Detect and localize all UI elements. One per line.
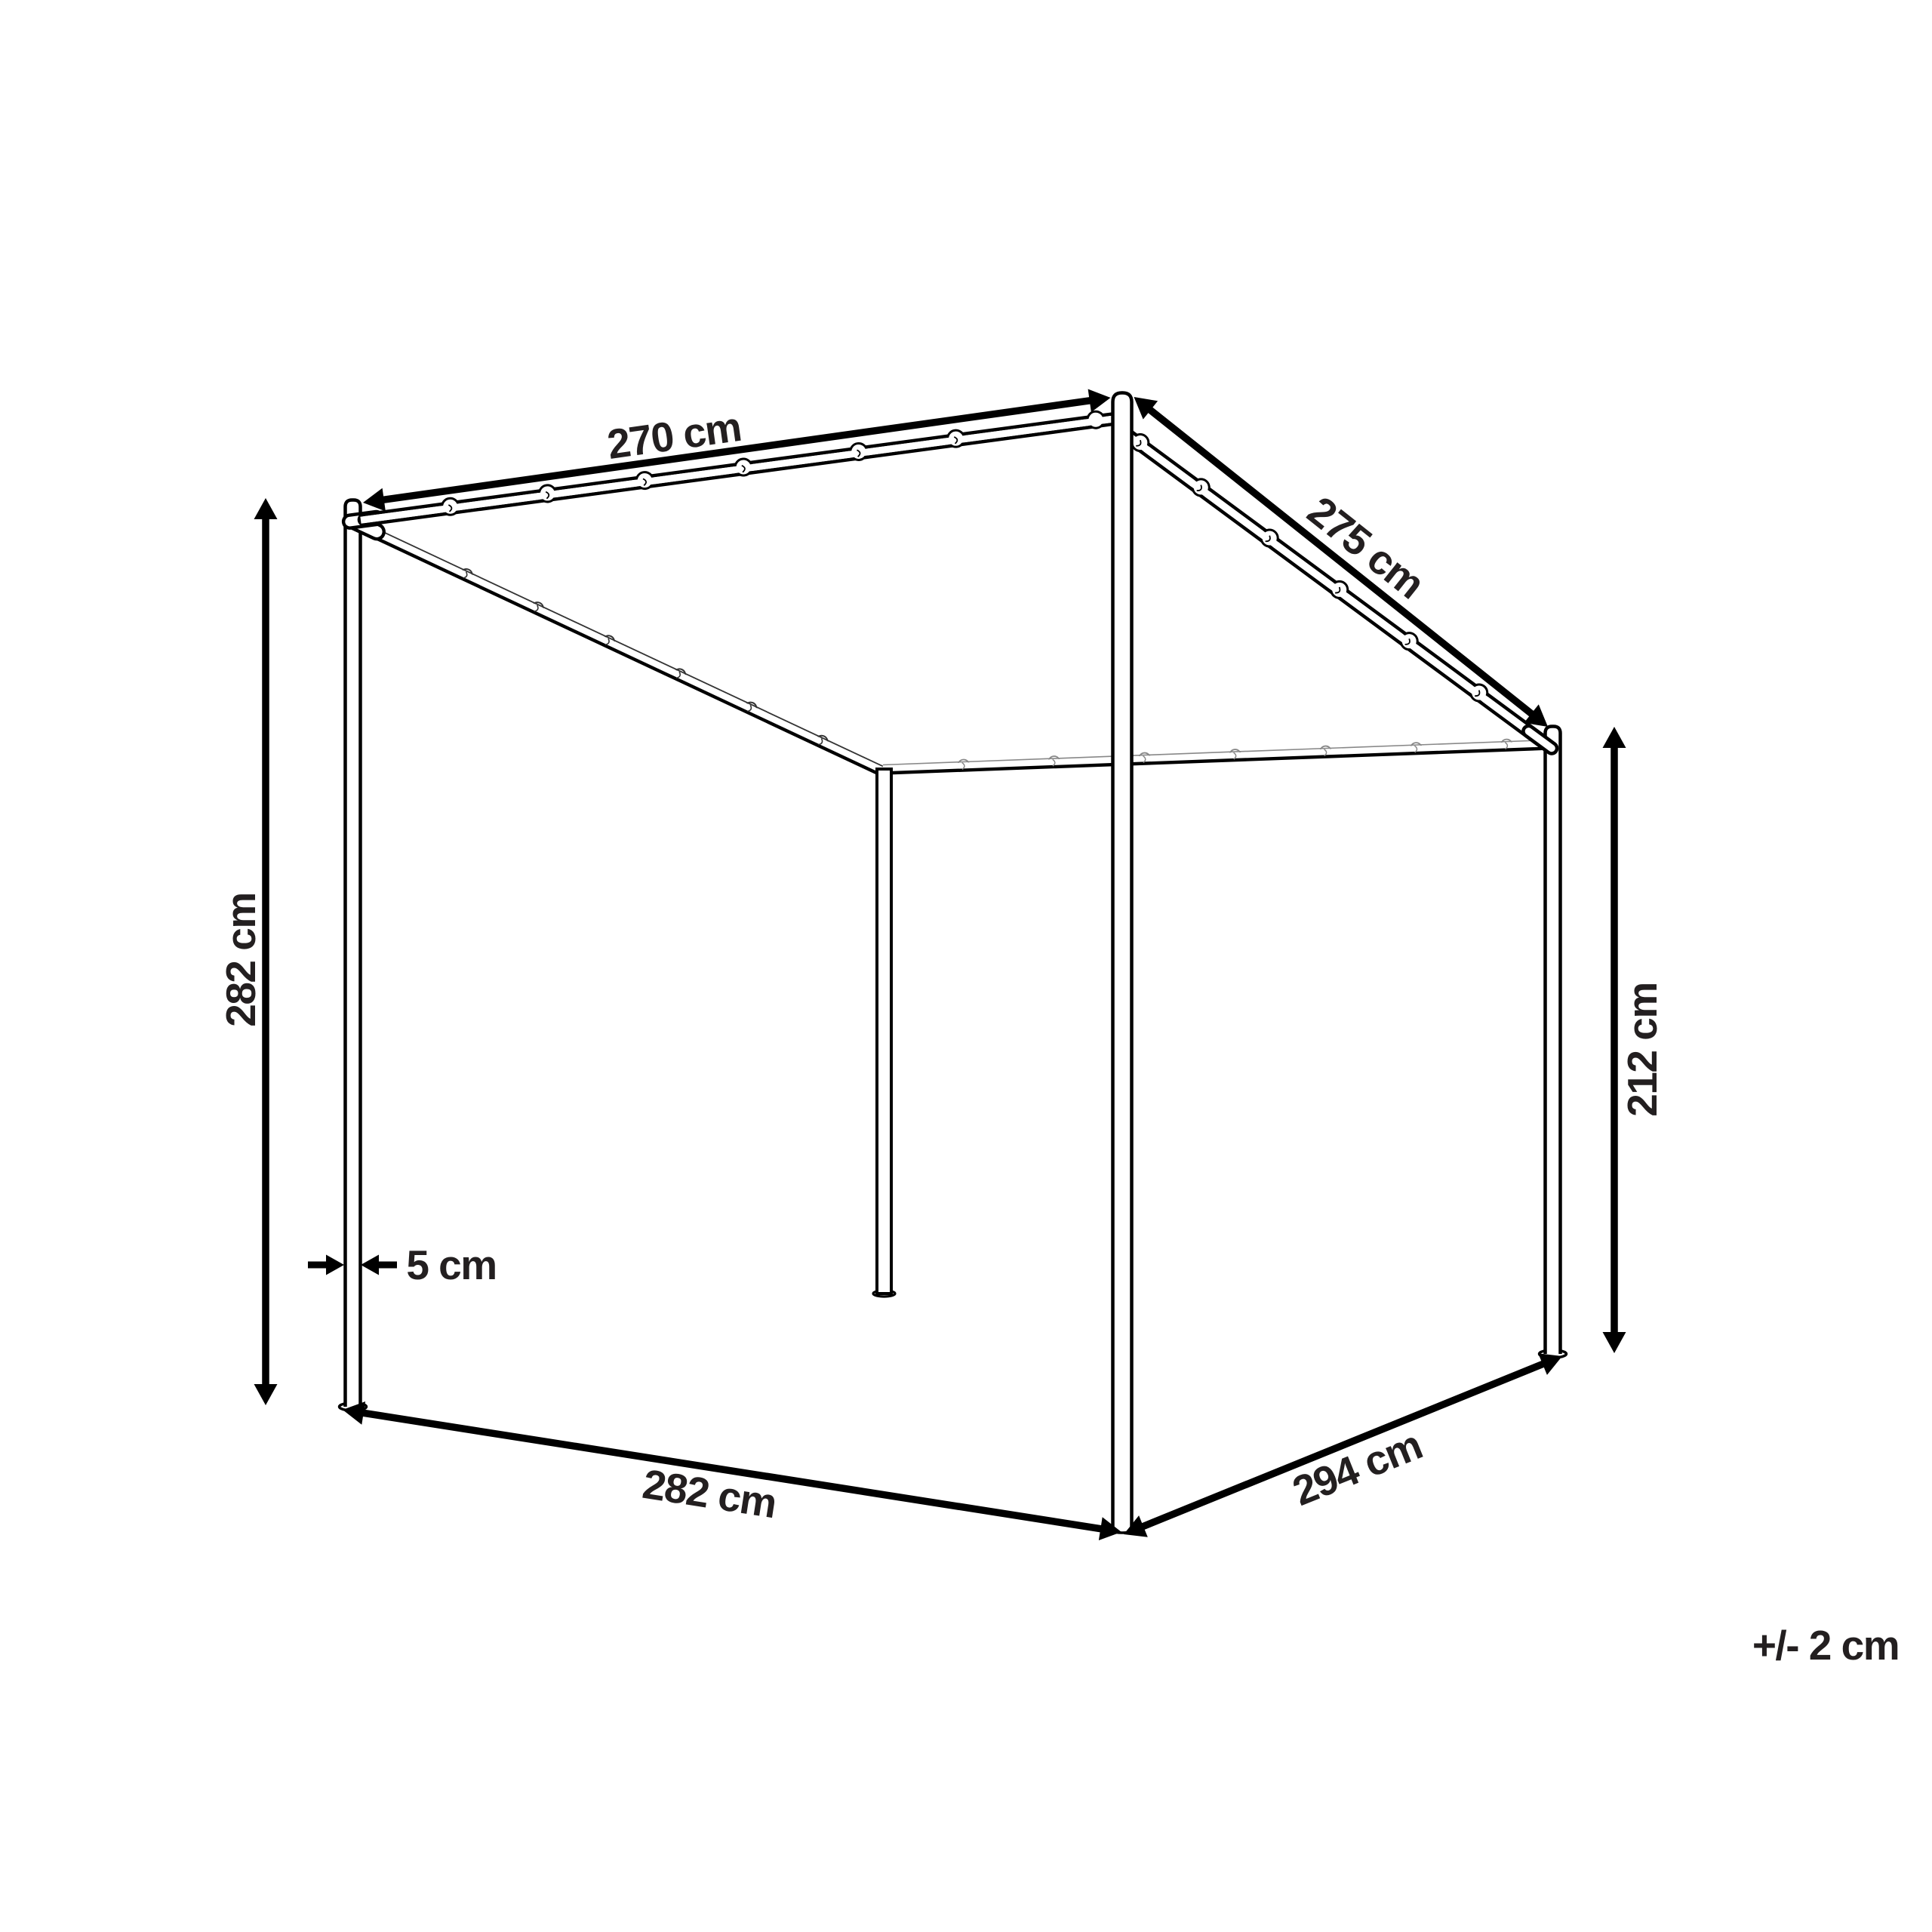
svg-text:282 cm: 282 cm	[217, 893, 264, 1027]
svg-text:212 cm: 212 cm	[1619, 983, 1666, 1117]
svg-text:+/- 2 cm: +/- 2 cm	[1752, 1622, 1899, 1669]
svg-text:5 cm: 5 cm	[406, 1241, 496, 1288]
